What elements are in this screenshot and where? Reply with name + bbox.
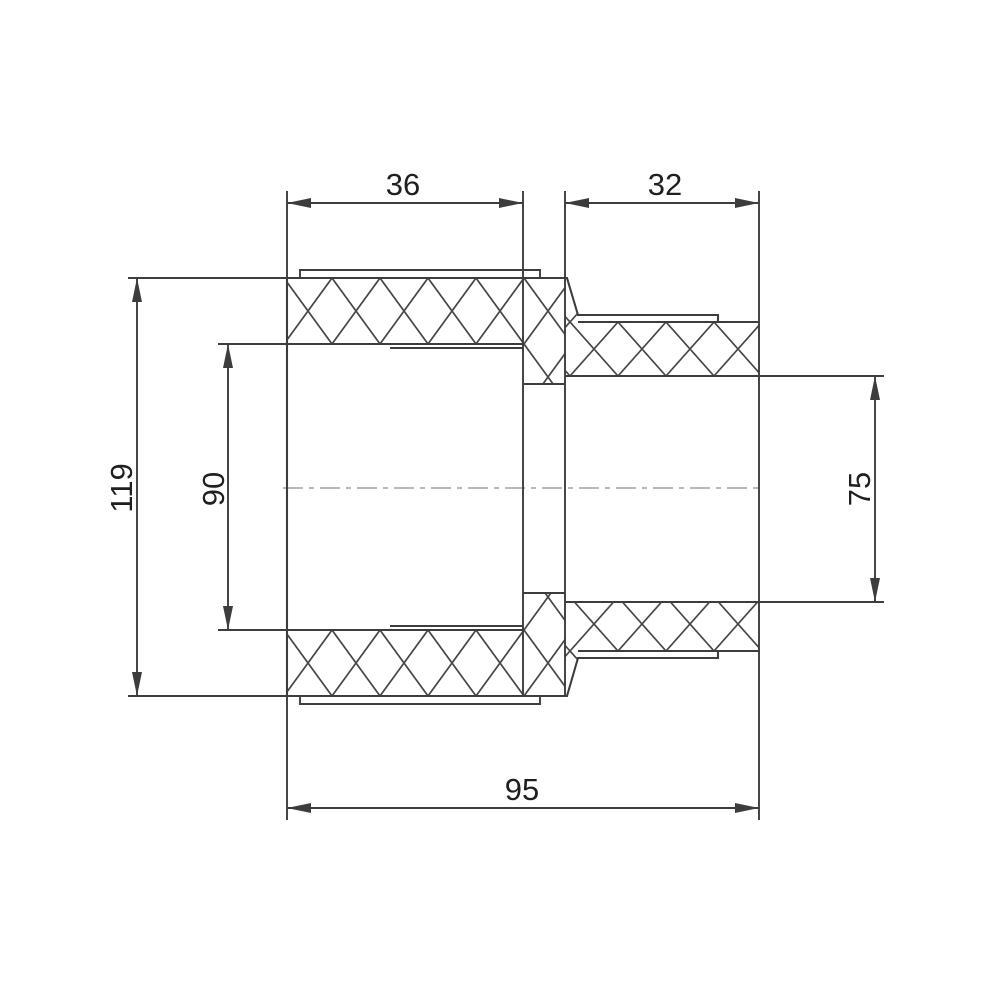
dim-label-left-thread-length: 36 [386, 167, 420, 202]
hatch-left-bottom-step-block [523, 593, 565, 696]
hatch-left-top-step-block [523, 278, 565, 384]
dim-label-right-thread-length: 32 [648, 167, 682, 202]
dim-label-right-bore: 75 [842, 472, 877, 506]
hatch-left-bottom-band [287, 630, 523, 696]
dim-label-overall-height: 119 [104, 463, 139, 512]
hatch-left-top-band [287, 278, 523, 344]
dim-label-overall-length: 95 [505, 772, 539, 807]
technical-drawing: 36 32 95 119 90 75 [0, 0, 1000, 1000]
dim-label-left-bore: 90 [196, 472, 231, 506]
